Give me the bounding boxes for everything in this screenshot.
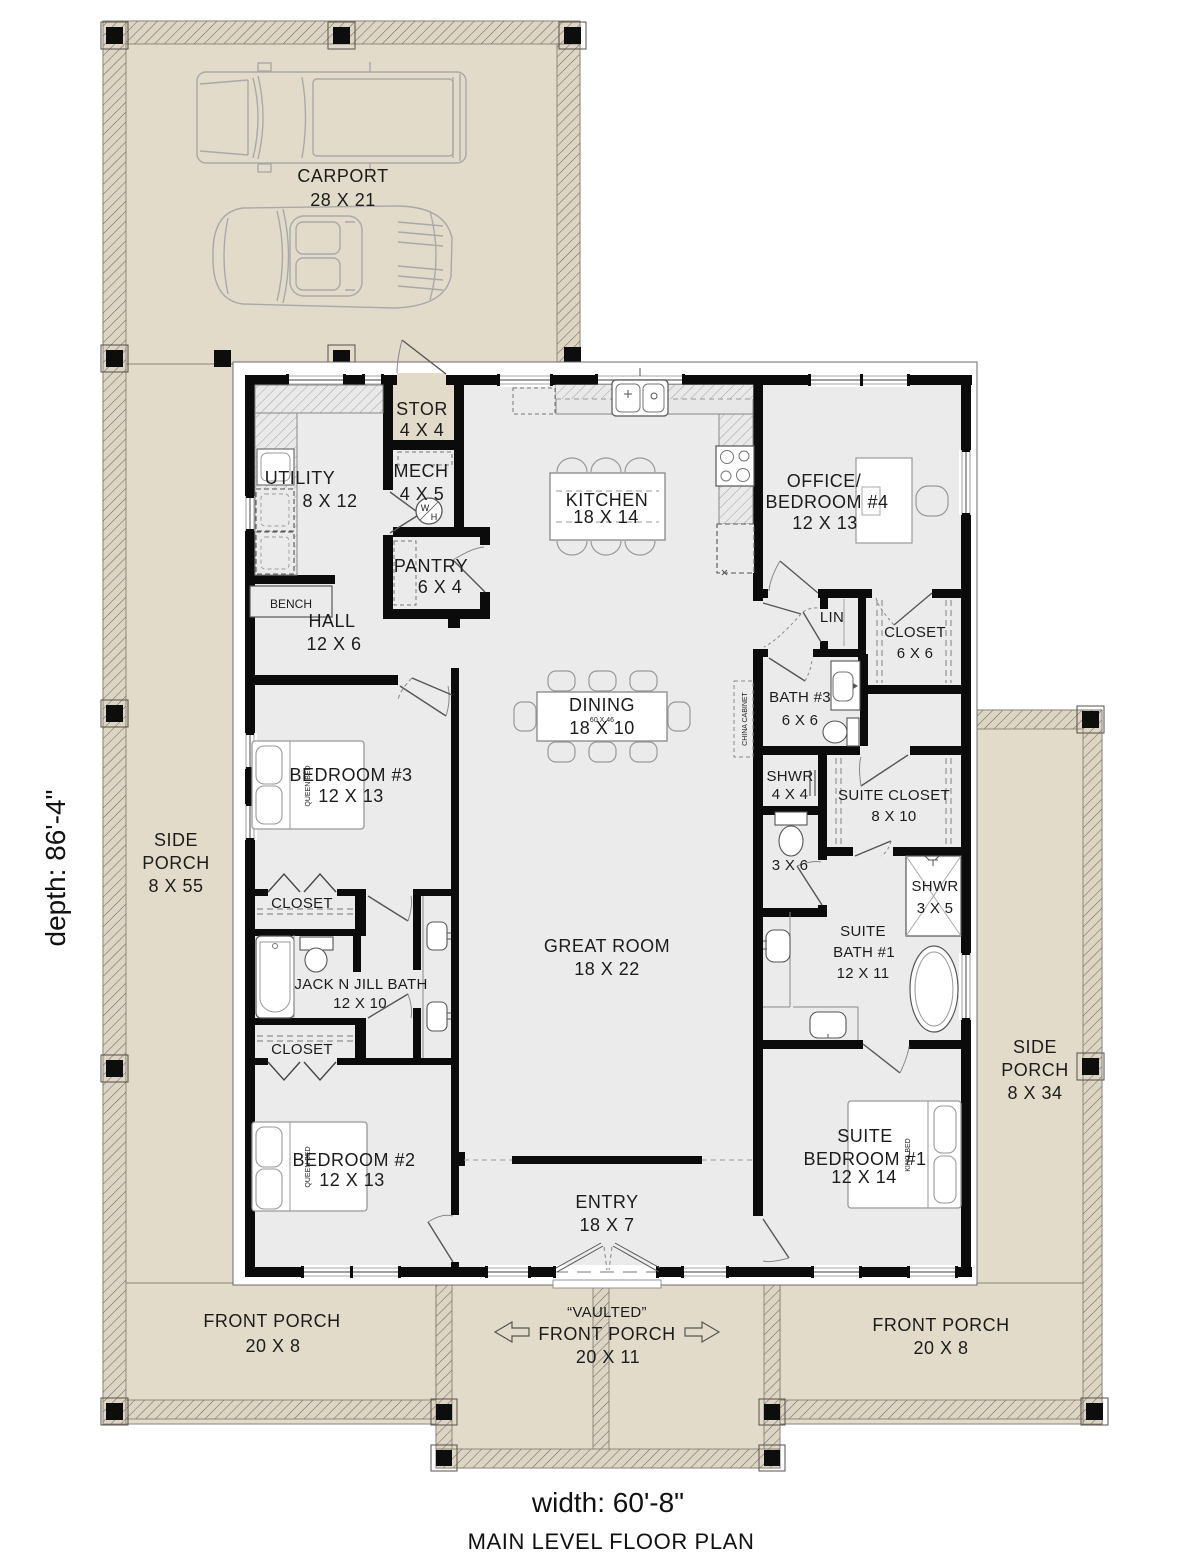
svg-text:width: 60'-8": width: 60'-8" bbox=[531, 1487, 684, 1518]
svg-text:CLOSET: CLOSET bbox=[271, 895, 333, 912]
svg-text:CLOSET: CLOSET bbox=[271, 1041, 333, 1058]
svg-text:6 X 4: 6 X 4 bbox=[418, 577, 463, 597]
svg-text:FRONT PORCH: FRONT PORCH bbox=[203, 1311, 340, 1331]
svg-text:JACK N JILL BATH: JACK N JILL BATH bbox=[294, 976, 427, 993]
svg-text:SHWR: SHWR bbox=[911, 878, 958, 895]
svg-text:CARPORT: CARPORT bbox=[297, 166, 388, 186]
svg-text:6 X 6: 6 X 6 bbox=[782, 712, 819, 729]
svg-text:PORCH: PORCH bbox=[1001, 1060, 1069, 1080]
svg-text:ENTRY: ENTRY bbox=[575, 1192, 638, 1212]
svg-text:HALL: HALL bbox=[308, 611, 355, 631]
svg-text:3 X 5: 3 X 5 bbox=[917, 900, 954, 917]
svg-text:18 X 14: 18 X 14 bbox=[573, 507, 639, 527]
svg-text:6 X 6: 6 X 6 bbox=[897, 645, 934, 662]
svg-text:12 X 13: 12 X 13 bbox=[792, 513, 858, 533]
svg-text:4 X 4: 4 X 4 bbox=[772, 786, 809, 803]
svg-text:BENCH: BENCH bbox=[270, 597, 312, 611]
svg-text:18 X 22: 18 X 22 bbox=[574, 959, 640, 979]
svg-text:12 X 13: 12 X 13 bbox=[319, 1170, 385, 1190]
svg-text:CHINA CABINET: CHINA CABINET bbox=[742, 691, 749, 745]
svg-text:GREAT ROOM: GREAT ROOM bbox=[544, 936, 670, 956]
svg-text:SUITE CLOSET: SUITE CLOSET bbox=[838, 787, 950, 804]
svg-text:8 X 34: 8 X 34 bbox=[1007, 1083, 1062, 1103]
svg-text:12 X 13: 12 X 13 bbox=[318, 786, 384, 806]
svg-text:8 X 55: 8 X 55 bbox=[148, 876, 203, 896]
svg-text:SUITE: SUITE bbox=[837, 1126, 893, 1146]
svg-text:20 X 8: 20 X 8 bbox=[245, 1336, 300, 1356]
svg-text:20 X 8: 20 X 8 bbox=[913, 1338, 968, 1358]
svg-text:BEDROOM #2: BEDROOM #2 bbox=[292, 1150, 415, 1170]
svg-text:SIDE: SIDE bbox=[1013, 1037, 1057, 1057]
svg-text:12 X 14: 12 X 14 bbox=[831, 1167, 897, 1187]
svg-text:depth: 86'-4": depth: 86'-4" bbox=[40, 790, 71, 947]
svg-text:MAIN LEVEL FLOOR PLAN: MAIN LEVEL FLOOR PLAN bbox=[468, 1529, 755, 1554]
svg-text:BEDROOM #3: BEDROOM #3 bbox=[289, 765, 412, 785]
svg-text:BATH #1: BATH #1 bbox=[833, 944, 895, 961]
svg-text:28 X 21: 28 X 21 bbox=[310, 190, 376, 210]
svg-text:3 X 6: 3 X 6 bbox=[772, 857, 809, 874]
svg-text:BATH #3: BATH #3 bbox=[769, 689, 831, 706]
svg-text:H: H bbox=[431, 512, 438, 522]
svg-text:BEDROOM #4: BEDROOM #4 bbox=[765, 492, 888, 512]
svg-text:W: W bbox=[421, 503, 430, 513]
svg-text:DINING: DINING bbox=[569, 695, 635, 715]
svg-text:12 X 11: 12 X 11 bbox=[837, 965, 890, 982]
svg-text:4 X 5: 4 X 5 bbox=[400, 484, 445, 504]
svg-text:SUITE: SUITE bbox=[840, 923, 886, 940]
svg-text:12 X 10: 12 X 10 bbox=[333, 995, 387, 1012]
svg-text:18 X 7: 18 X 7 bbox=[579, 1215, 634, 1235]
svg-text:BEDROOM #1: BEDROOM #1 bbox=[803, 1149, 926, 1169]
svg-text:CLOSET: CLOSET bbox=[884, 624, 946, 641]
svg-text:MECH: MECH bbox=[394, 461, 449, 481]
svg-text:UTILITY: UTILITY bbox=[265, 468, 336, 488]
svg-text:8 X 12: 8 X 12 bbox=[302, 491, 357, 511]
svg-text:20 X 11: 20 X 11 bbox=[576, 1347, 640, 1367]
svg-text:12 X 6: 12 X 6 bbox=[306, 634, 361, 654]
svg-text:8 X 10: 8 X 10 bbox=[871, 808, 916, 825]
svg-text:STOR: STOR bbox=[396, 399, 448, 419]
svg-text:“VAULTED”: “VAULTED” bbox=[567, 1304, 647, 1321]
svg-text:4 X 4: 4 X 4 bbox=[400, 420, 445, 440]
svg-text:PANTRY: PANTRY bbox=[394, 556, 468, 576]
svg-text:SIDE: SIDE bbox=[154, 830, 198, 850]
svg-text:FRONT PORCH: FRONT PORCH bbox=[872, 1315, 1009, 1335]
svg-text:LIN: LIN bbox=[820, 609, 844, 626]
svg-text:FRONT PORCH: FRONT PORCH bbox=[538, 1324, 675, 1344]
svg-text:SHWR: SHWR bbox=[766, 768, 813, 785]
svg-text:18 X 10: 18 X 10 bbox=[569, 718, 635, 738]
svg-text:OFFICE/: OFFICE/ bbox=[787, 471, 862, 491]
svg-text:PORCH: PORCH bbox=[142, 853, 210, 873]
